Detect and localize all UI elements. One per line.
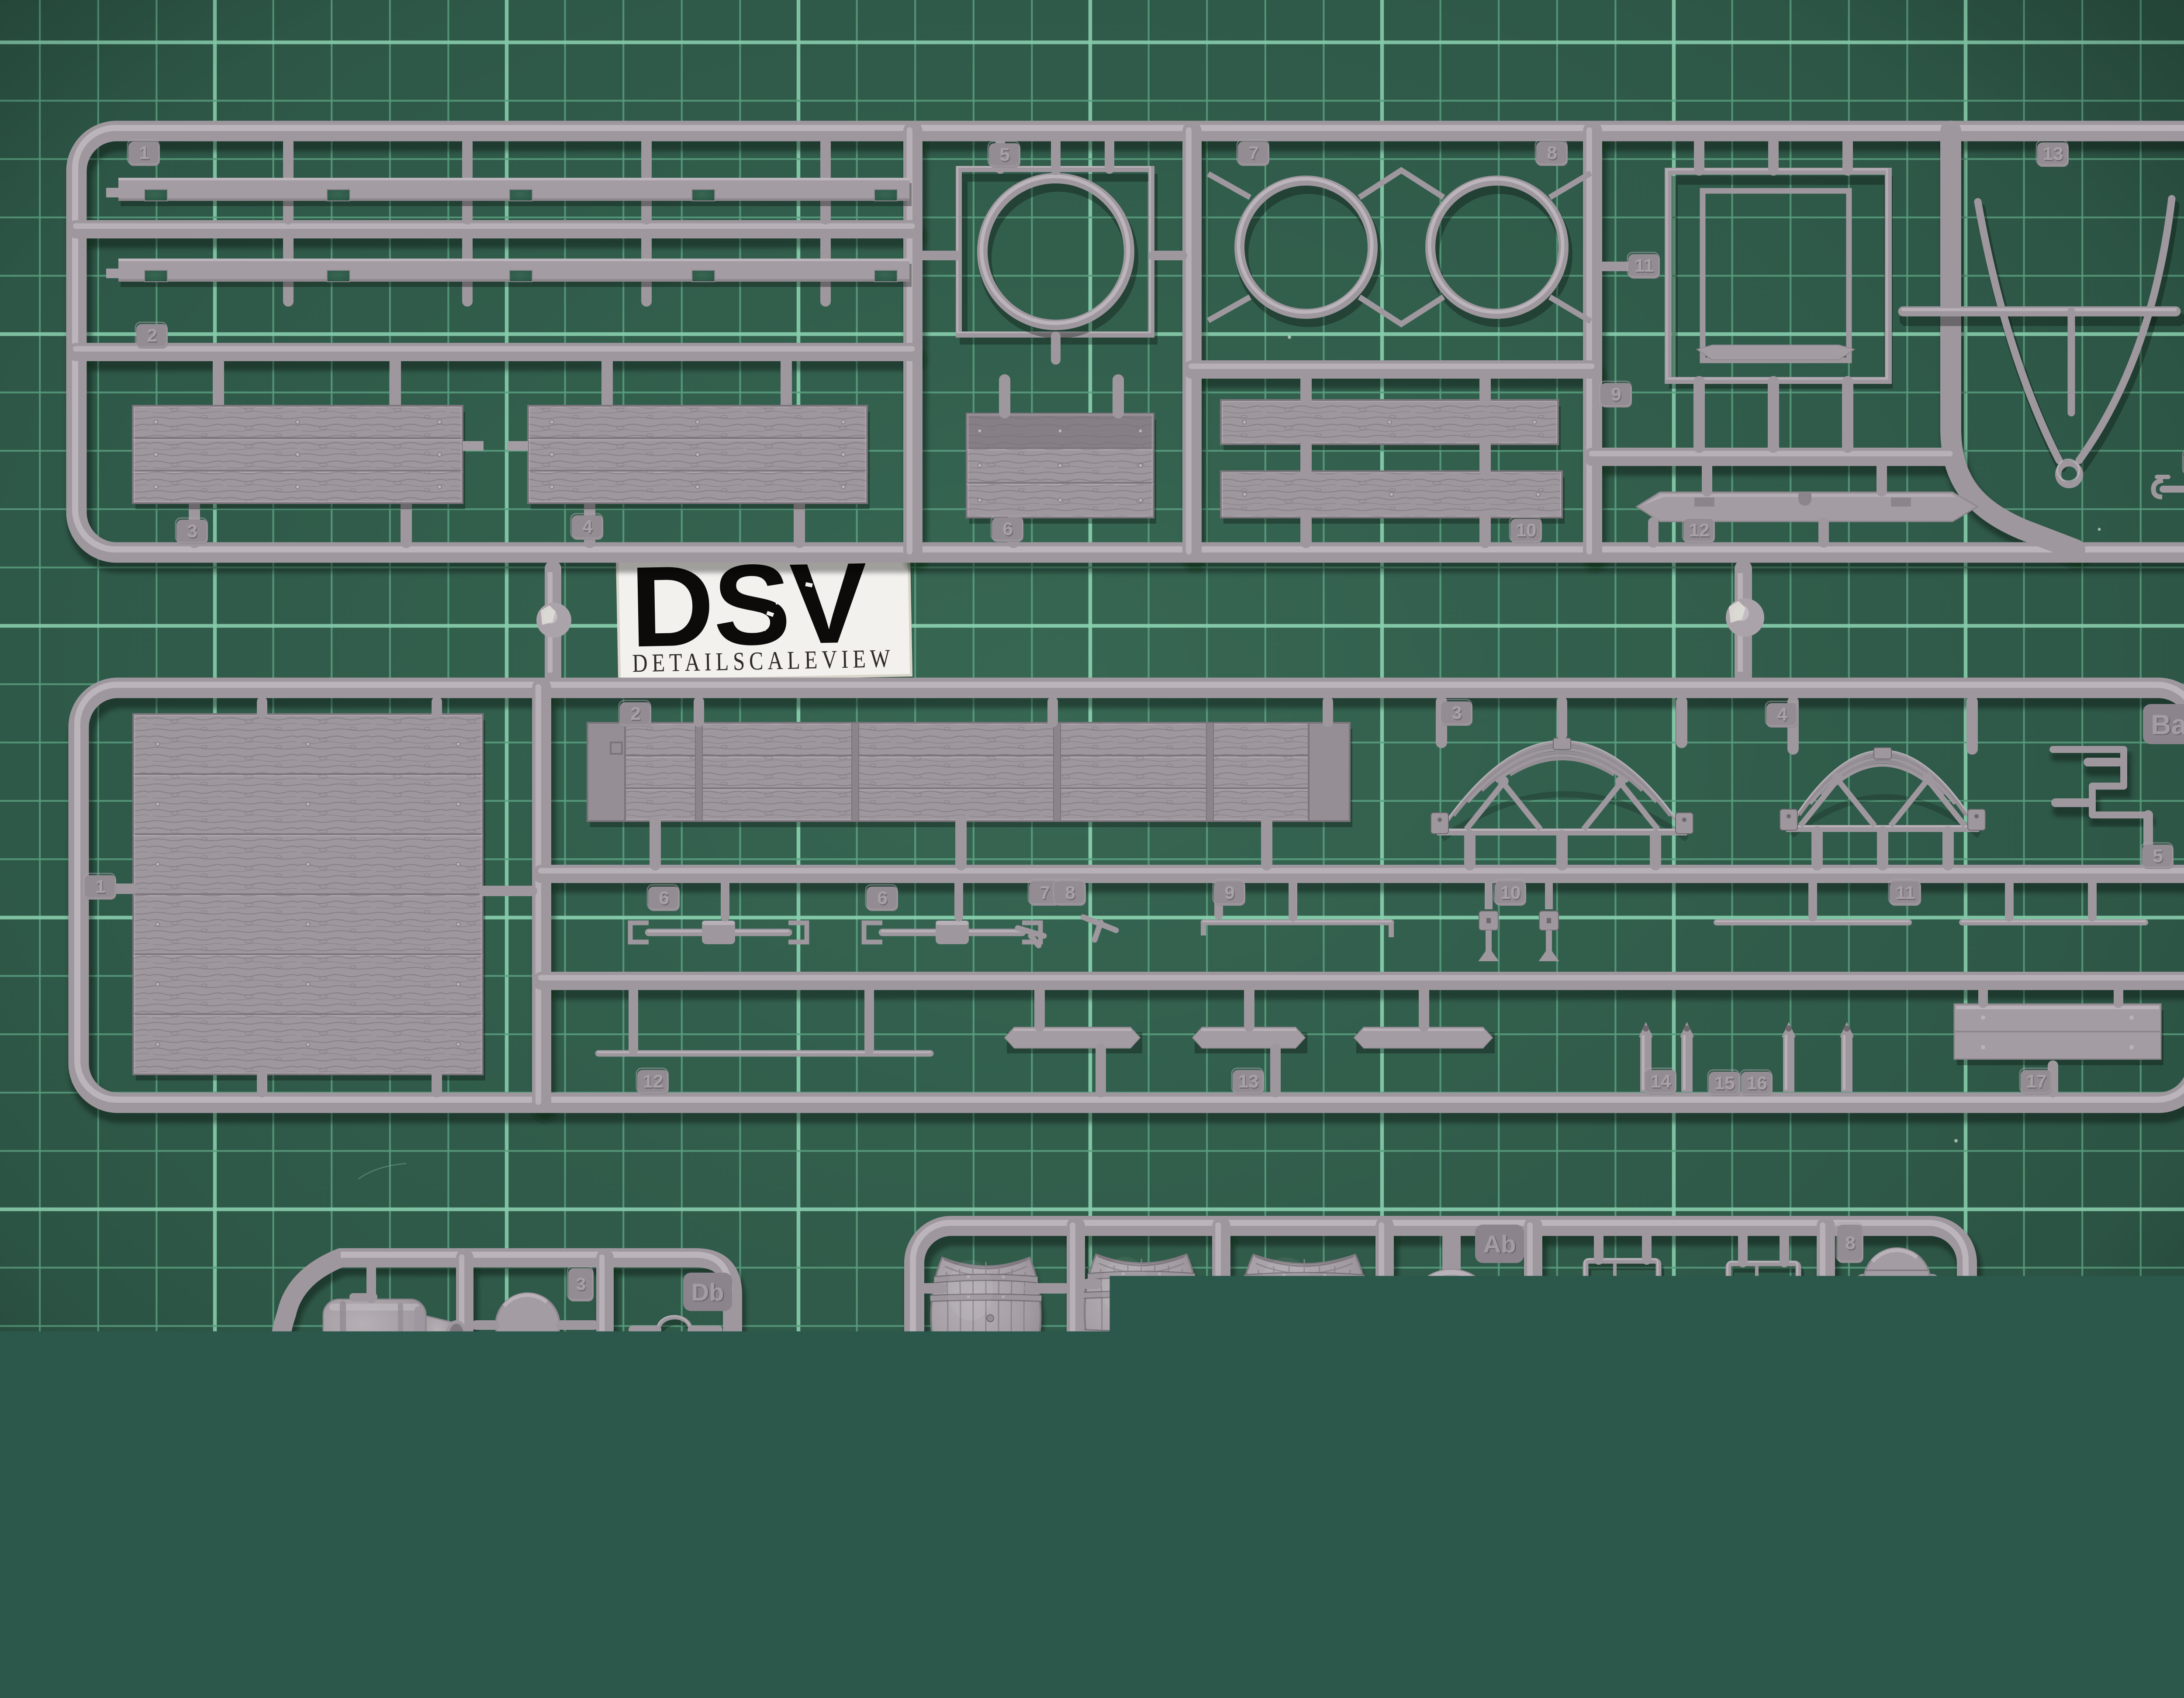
svg-text:7: 7 [1040, 882, 1050, 903]
svg-text:6: 6 [659, 887, 669, 908]
svg-text:11: 11 [1896, 882, 1915, 903]
svg-text:3: 3 [1451, 702, 1462, 723]
svg-text:2: 2 [922, 1420, 932, 1441]
svg-text:5: 5 [570, 1503, 580, 1522]
svg-text:1: 1 [95, 876, 105, 897]
svg-text:10: 10 [1500, 882, 1521, 903]
svg-text:4: 4 [1400, 1380, 1410, 1400]
svg-text:8: 8 [1547, 142, 1557, 163]
svg-text:9: 9 [1224, 882, 1234, 903]
svg-text:2: 2 [1077, 1420, 1087, 1441]
svg-text:15: 15 [1714, 1073, 1735, 1093]
svg-text:2: 2 [630, 703, 640, 724]
svg-text:8: 8 [1065, 882, 1075, 903]
svg-text:1: 1 [1077, 1380, 1087, 1400]
svg-text:Ab: Ab [1483, 1230, 1516, 1258]
svg-text:13: 13 [2043, 143, 2063, 164]
svg-text:DETAILSCALEVIEW: DETAILSCALEVIEW [632, 644, 895, 678]
svg-text:3: 3 [576, 1274, 586, 1294]
svg-text:9: 9 [1611, 384, 1621, 404]
svg-text:10: 10 [1516, 520, 1537, 540]
svg-text:5: 5 [1700, 1380, 1710, 1400]
svg-text:12: 12 [643, 1071, 663, 1091]
svg-text:2: 2 [434, 1431, 443, 1450]
svg-text:4: 4 [582, 516, 593, 537]
svg-text:Ba: Ba [2151, 709, 2184, 740]
svg-text:5: 5 [999, 144, 1009, 165]
svg-text:4: 4 [574, 1431, 584, 1450]
svg-text:2: 2 [147, 325, 157, 345]
svg-text:5: 5 [2153, 846, 2163, 866]
svg-text:4: 4 [1777, 704, 1787, 725]
svg-text:7: 7 [610, 1503, 620, 1522]
svg-text:6: 6 [1002, 518, 1013, 539]
svg-text:1: 1 [432, 1382, 442, 1401]
svg-text:3: 3 [1231, 1380, 1241, 1400]
svg-text:17: 17 [2026, 1071, 2047, 1091]
svg-text:1: 1 [922, 1380, 932, 1400]
svg-text:11: 11 [1635, 255, 1654, 276]
svg-text:8: 8 [1845, 1232, 1855, 1253]
svg-text:5: 5 [1531, 1380, 1541, 1400]
svg-text:8: 8 [1842, 1573, 1852, 1594]
svg-text:1: 1 [139, 142, 149, 163]
svg-text:16: 16 [1747, 1073, 1767, 1093]
svg-text:7: 7 [1726, 1420, 1736, 1441]
svg-text:13: 13 [1238, 1071, 1259, 1091]
svg-text:Db: Db [691, 1278, 724, 1306]
svg-text:14: 14 [1651, 1071, 1671, 1091]
svg-text:6: 6 [1531, 1420, 1541, 1441]
svg-text:6: 6 [615, 1343, 625, 1362]
svg-text:3: 3 [187, 521, 197, 541]
svg-text:4: 4 [1397, 1420, 1407, 1441]
svg-text:7: 7 [1248, 142, 1258, 163]
svg-text:6: 6 [877, 887, 887, 908]
svg-text:12: 12 [1689, 520, 1710, 540]
svg-text:13: 13 [1237, 1420, 1257, 1441]
